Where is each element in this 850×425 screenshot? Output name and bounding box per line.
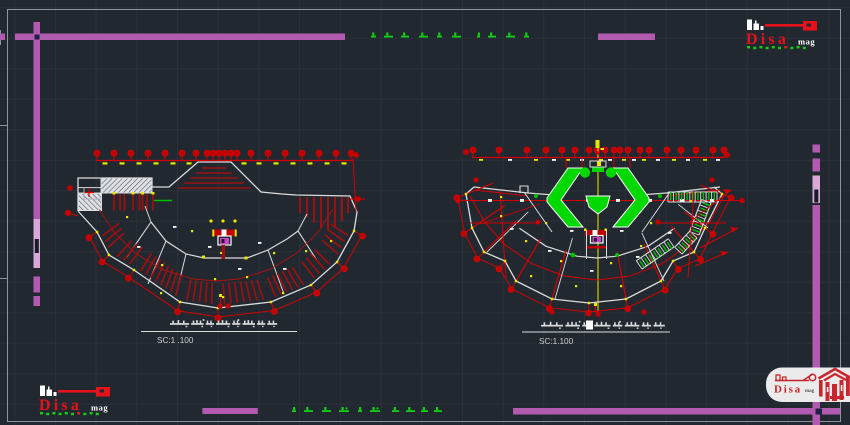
svg-text:mag: mag xyxy=(91,403,108,413)
svg-text:Disa: Disa xyxy=(774,384,802,396)
svg-text:Disa: Disa xyxy=(39,397,82,414)
svg-text:Disa: Disa xyxy=(746,31,789,48)
svg-text:mag: mag xyxy=(805,389,815,394)
svg-text:SC:1 .100: SC:1 .100 xyxy=(157,336,194,345)
svg-text:mag: mag xyxy=(798,37,815,47)
svg-text:SC:1.100: SC:1.100 xyxy=(539,337,574,346)
